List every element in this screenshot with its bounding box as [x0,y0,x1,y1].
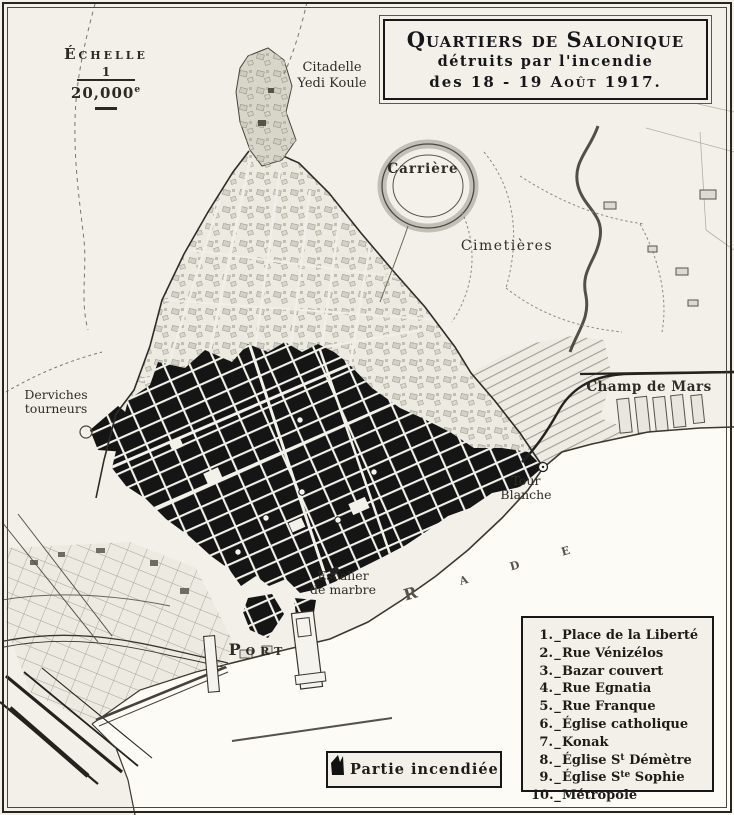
scale-denominator-value: 20,000 [71,84,134,102]
legend-item-label: Église St Démètre [562,753,692,771]
map-date: des 18 - 19 Août 1917. [385,73,706,92]
legend-item-label: Rue Vénizélos [562,646,663,664]
legend-item-number: 7. [531,735,553,753]
legend-item-separator: _ [553,628,562,646]
legend-item-number: 1. [531,628,553,646]
legend-item-separator: _ [553,753,562,771]
map-title: Quartiers de Salonique [385,28,706,52]
label-champ-de-mars: Champ de Mars [586,379,711,395]
legend-item: 3._Bazar couvert [531,664,708,682]
legend-item-label: Rue Franque [562,699,656,717]
legend-label-pre: Rue Vénizélos [562,646,663,661]
rural-buildings [604,190,716,306]
legend-label-pre: Place de la Liberté [562,628,698,643]
legend-label-post: Démètre [625,753,692,768]
legend-item-label: Rue Egnatia [562,681,651,699]
map-date-year: 1917. [605,73,662,91]
legend-label-sup: te [620,770,630,780]
legend-label-pre: Rue Egnatia [562,681,651,696]
burned-area-key: Partie incendiée [326,751,502,788]
legend-item: 8._Église St Démètre [531,753,708,771]
legend-label-pre: Konak [562,735,609,750]
legend-item: 7._Konak [531,735,708,753]
legend-label-pre: Église S [562,770,620,785]
legend-item-number: 4. [531,681,553,699]
legend-item-number: 8. [531,753,553,771]
legend-item-number: 3. [531,664,553,682]
label-tour-blanche-line2: Blanche [500,488,551,502]
legend-item-separator: _ [553,699,562,717]
label-tour-blanche: Tour Blanche [500,474,551,502]
legend-item-separator: _ [553,788,562,806]
legend-item-separator: _ [553,717,562,735]
label-derviches-line2: tourneurs [10,402,102,416]
legend-label-sup: t [620,753,624,763]
scale-numerator: 1 [44,66,168,78]
scale-label: Échelle [44,45,168,63]
title-box-inner: Quartiers de Salonique détruits par l'in… [383,19,708,100]
legend-item-number: 2. [531,646,553,664]
label-carriere: Carrière [387,161,458,177]
legend-item: 1._Place de la Liberté [531,628,708,646]
map-subtitle: détruits par l'incendie [385,53,706,71]
label-derviches-line1: Derviches [10,388,102,402]
legend-item: 9._Église Ste Sophie [531,770,708,788]
legend-item: 2._Rue Vénizélos [531,646,708,664]
title-box: Quartiers de Salonique détruits par l'in… [379,15,712,104]
label-cimetieres: Cimetières [461,238,553,254]
legend-label-pre: Rue Franque [562,699,656,714]
legend-item-separator: _ [553,646,562,664]
scale-denominator: 20,000e [44,82,168,101]
tekke-marker [80,426,92,438]
label-citadelle: Citadelle Yedi Koule [297,60,366,92]
label-escalier-line1: Escalier [310,569,376,583]
legend-item-label: Bazar couvert [562,664,663,682]
legend-item: 5._Rue Franque [531,699,708,717]
legend-item-number: 10. [531,788,553,806]
tour-blanche-marker [539,463,548,472]
legend-item-label: Église Ste Sophie [562,770,685,788]
legend-item-number: 6. [531,717,553,735]
legend-item: 6._Église catholique [531,717,708,735]
legend-item-number: 9. [531,770,553,788]
legend-label-pre: Église S [562,753,620,768]
historical-map: Échelle 1 20,000e Quartiers de Salonique… [0,0,734,815]
legend-item-label: Place de la Liberté [562,628,698,646]
legend-label-post: Sophie [630,770,684,785]
label-derviches-tourneurs: Derviches tourneurs [10,388,102,416]
legend-item-separator: _ [553,681,562,699]
legend-item-separator: _ [553,770,562,788]
legend-item-label: Église catholique [562,717,688,735]
burned-swatch-icon [328,753,345,776]
legend-item-separator: _ [553,735,562,753]
legend-box: 1._Place de la Liberté 2._Rue Vénizélos … [521,616,714,792]
map-date-month: Août [551,73,598,91]
label-port: Port [229,640,288,659]
legend-label-pre: Église catholique [562,717,688,732]
scale-tick-mark [95,107,117,110]
label-escalier-line2: de marbre [310,583,376,597]
scale-fraction-bar [77,79,135,81]
legend-item-number: 5. [531,699,553,717]
legend-item-label: Métropole [562,788,637,806]
legend-label-pre: Métropole [562,788,637,803]
scale-block: Échelle 1 20,000e [44,45,168,110]
legend-item-label: Konak [562,735,609,753]
legend-item-separator: _ [553,664,562,682]
scale-denominator-sup: e [134,85,141,95]
label-escalier-de-marbre: Escalier de marbre [310,569,376,597]
citadel [236,48,296,166]
legend-label-pre: Bazar couvert [562,664,663,679]
stream [570,126,601,352]
burned-area-key-label: Partie incendiée [350,761,499,778]
label-citadelle-line1: Citadelle [297,60,366,76]
label-citadelle-line2: Yedi Koule [297,76,366,92]
legend-item: 4._Rue Egnatia [531,681,708,699]
map-date-prefix: des 18 - 19 [429,73,543,91]
label-tour-blanche-line1: Tour [500,474,551,488]
legend-item: 10._Métropole [531,788,708,806]
